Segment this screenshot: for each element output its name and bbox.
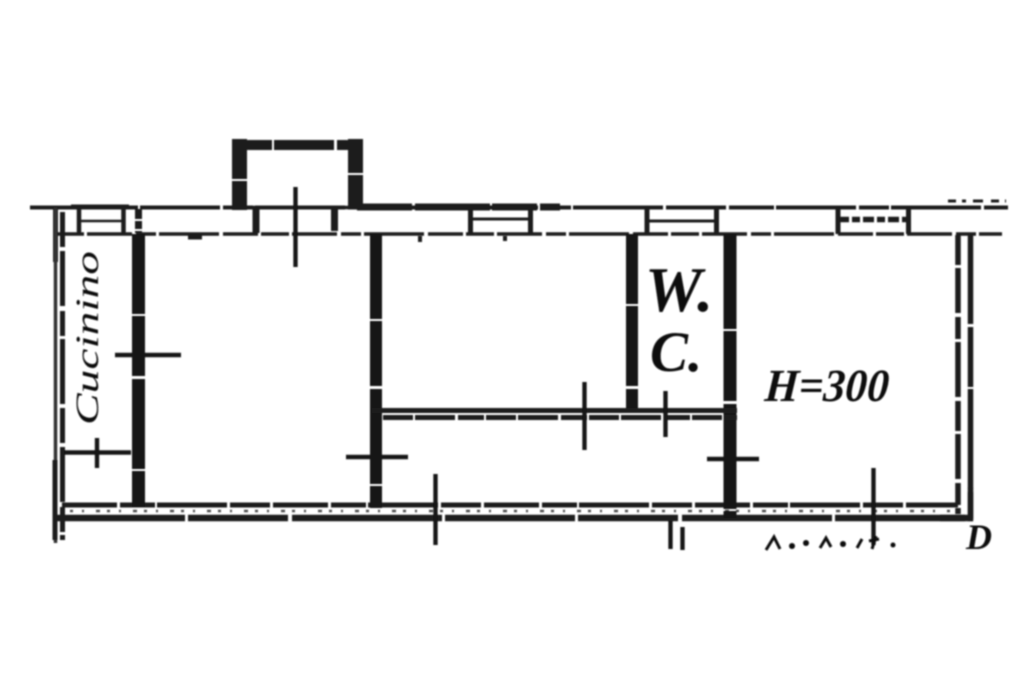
- svg-text:H=300: H=300: [762, 360, 891, 411]
- svg-text:W.: W.: [645, 254, 713, 325]
- svg-text:Cucinino: Cucinino: [70, 251, 106, 425]
- svg-text:D: D: [965, 517, 992, 557]
- svg-text:C.: C.: [650, 321, 702, 384]
